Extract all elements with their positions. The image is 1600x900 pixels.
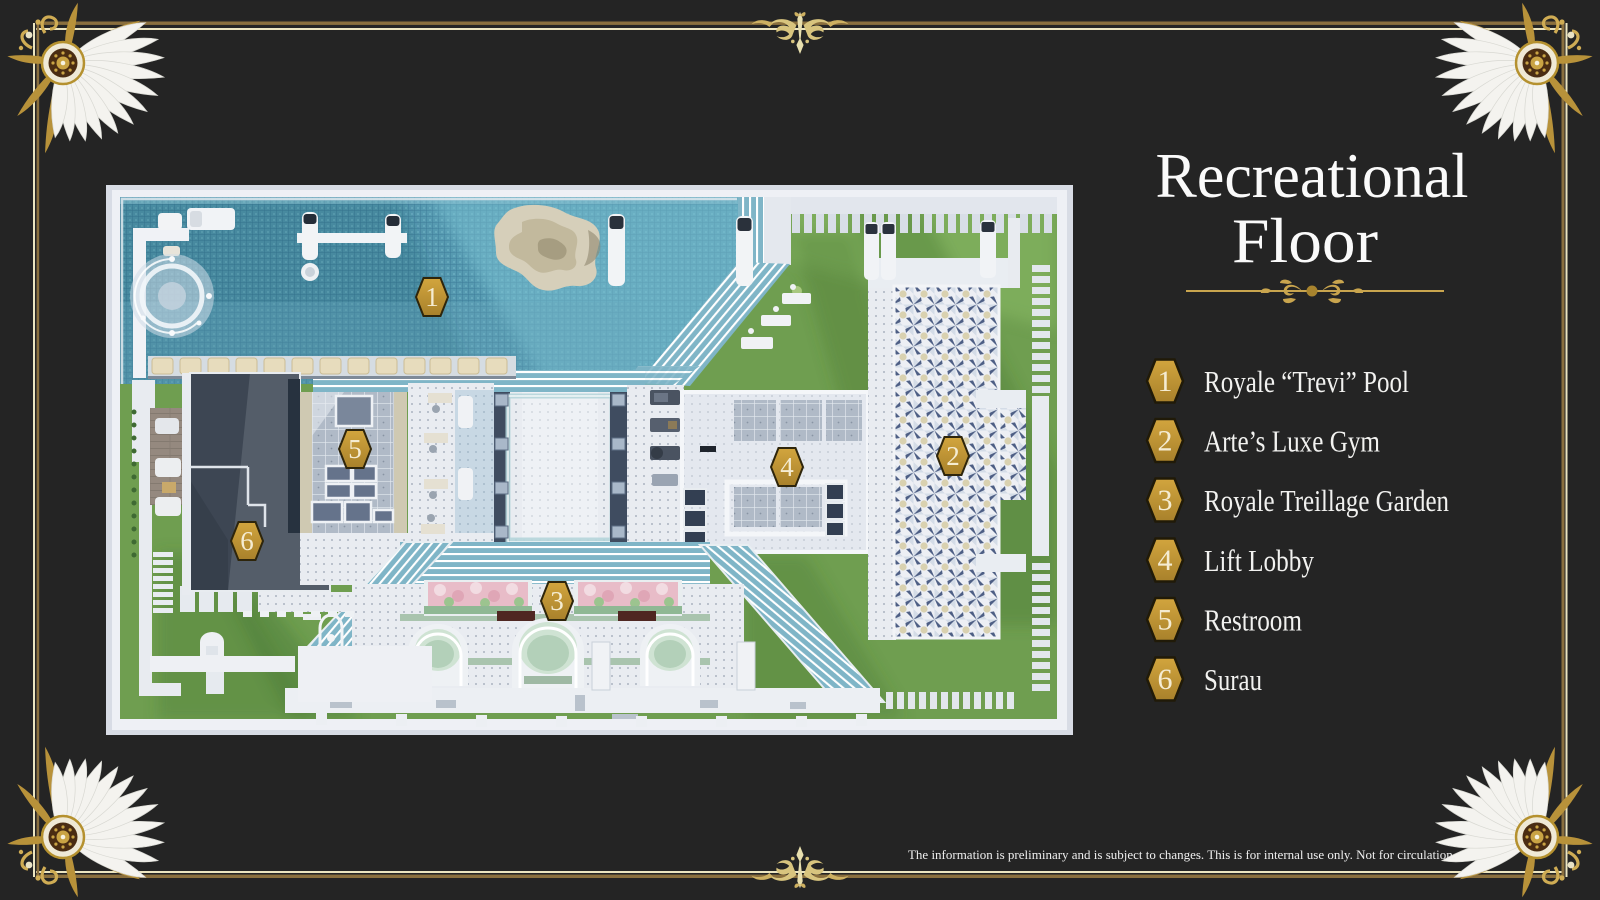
- svg-text:5: 5: [348, 434, 362, 464]
- svg-text:4: 4: [780, 452, 794, 482]
- svg-text:5: 5: [1158, 604, 1173, 637]
- svg-text:Floor: Floor: [1232, 205, 1378, 276]
- svg-text:6: 6: [240, 526, 254, 556]
- svg-text:Royale “Trevi” Pool: Royale “Trevi” Pool: [1204, 364, 1409, 399]
- svg-text:2: 2: [1158, 425, 1173, 458]
- svg-text:Restroom: Restroom: [1204, 603, 1302, 638]
- svg-text:1: 1: [425, 282, 439, 312]
- svg-text:4: 4: [1158, 544, 1173, 577]
- svg-text:6: 6: [1158, 663, 1173, 696]
- svg-text:Recreational: Recreational: [1156, 140, 1469, 211]
- svg-text:The information is preliminary: The information is preliminary and is su…: [908, 848, 1456, 862]
- svg-text:2: 2: [946, 441, 960, 471]
- svg-text:Arte’s Luxe Gym: Arte’s Luxe Gym: [1204, 424, 1380, 459]
- svg-text:Surau: Surau: [1204, 662, 1262, 697]
- svg-text:3: 3: [550, 586, 564, 616]
- svg-text:Royale Treillage Garden: Royale Treillage Garden: [1204, 483, 1449, 518]
- svg-text:Lift Lobby: Lift Lobby: [1204, 543, 1314, 578]
- svg-text:1: 1: [1158, 365, 1173, 398]
- svg-text:3: 3: [1158, 484, 1173, 517]
